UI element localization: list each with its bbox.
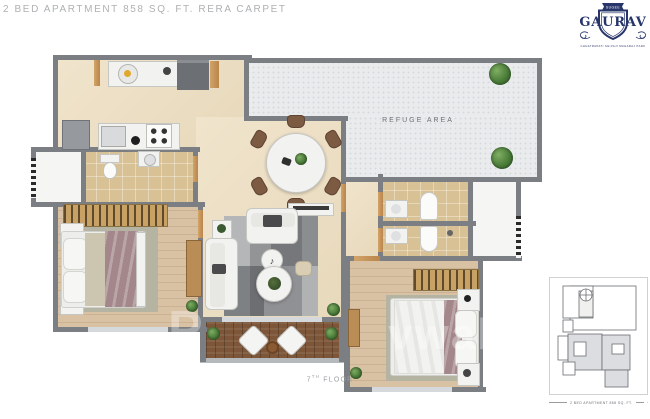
caption-line — [636, 402, 644, 403]
bedroom2-duvet — [394, 300, 446, 374]
window-dry-balcony — [31, 158, 36, 198]
refuge-area-lower — [343, 116, 540, 180]
master-pillow — [63, 238, 87, 270]
key-plan-caption-row: 2 BED APARTMENT 858 SQ. FT. — [549, 396, 648, 409]
bedroom2-wardrobe — [413, 269, 479, 291]
master-bedroom-door — [198, 210, 203, 238]
wall-balcony-right — [339, 320, 346, 362]
sofa-left-tray — [212, 264, 226, 274]
wall-refuge-bottom — [341, 177, 542, 182]
master-bedroom-plant — [186, 300, 198, 312]
gas-hob — [146, 124, 172, 148]
tv-icon — [293, 206, 329, 210]
window-utility — [516, 216, 521, 258]
dry-balcony-floor — [33, 150, 85, 205]
bedroom2-bench — [348, 309, 360, 347]
key-plan — [549, 277, 648, 395]
bathroom1-door — [193, 156, 198, 182]
toilet1-bowl — [103, 162, 117, 179]
refrigerator — [62, 120, 90, 150]
kitchen-door — [94, 60, 100, 86]
bathroom2-door — [378, 192, 383, 216]
washbasin2-bowl — [391, 204, 401, 214]
wall-dry-bath-divider — [81, 147, 86, 207]
toilet3 — [420, 226, 438, 252]
logo-brand-name: GAURAV — [579, 15, 646, 30]
bedside-lamp-icon — [464, 295, 471, 302]
floor-ordinal: TH — [312, 374, 320, 379]
brand-logo: SUGEE GAURAV CHHATRAPATI SHIVAJI MAHARAJ… — [576, 2, 650, 49]
utility-room-floor — [473, 180, 518, 260]
brand-logo-graphic: SUGEE GAURAV CHHATRAPATI SHIVAJI MAHARAJ… — [576, 2, 650, 49]
washbasin1-bowl — [144, 154, 156, 166]
key-plan-caption: 2 BED APARTMENT 858 SQ. FT. — [570, 401, 633, 405]
wall-living-right — [341, 116, 346, 322]
wall-master-left — [53, 202, 58, 332]
balcony-railing — [200, 358, 346, 363]
master-blanket-mauve — [105, 231, 138, 307]
bathroom3-door — [378, 228, 383, 252]
refuge-plant — [491, 147, 513, 169]
main-entrance-door — [210, 61, 219, 88]
pouf — [295, 261, 312, 276]
master-pillow — [63, 271, 87, 303]
floor-word: FLOOR — [323, 376, 353, 383]
shower-head-icon — [447, 230, 453, 236]
wall-bath-utility — [468, 177, 473, 261]
kitchen-tall-cabinet — [177, 60, 209, 90]
wall-balcony-left — [200, 320, 206, 362]
page-title: 2 BED APARTMENT 858 SQ. FT. RERA CARPET — [3, 4, 287, 15]
bedside-decor-icon — [463, 369, 471, 377]
floor-plan-page: 2 BED APARTMENT 858 SQ. FT. RERA CARPET … — [0, 0, 650, 419]
floor-label: 7TH FLOOR — [270, 374, 390, 383]
key-plan-drawing — [550, 278, 647, 394]
balcony-plant — [207, 327, 220, 340]
music-note-icon: ♪ — [270, 256, 275, 266]
fruit-bowl-icon — [124, 70, 131, 77]
compass-icon — [647, 396, 648, 409]
master-dresser — [186, 240, 202, 297]
window-master-bedroom — [88, 327, 168, 332]
passage-floor — [346, 177, 381, 262]
logo-ribbon-text: SUGEE — [606, 5, 621, 9]
wall-kitchen-left — [53, 55, 58, 152]
sofa-left — [205, 238, 238, 310]
kettle-icon — [131, 136, 140, 145]
master-footboard — [136, 232, 146, 307]
toilet2 — [420, 192, 438, 220]
living-room-plant — [327, 303, 340, 316]
coffee-table-plant — [268, 277, 281, 290]
wall-refuge-right — [537, 58, 542, 182]
logo-tagline: CHHATRAPATI SHIVAJI MAHARAJ PARK — [581, 44, 646, 48]
sofa-top-tray — [263, 215, 282, 227]
balcony-slider-door — [222, 317, 322, 322]
refuge-area-label: REFUGE AREA — [368, 117, 468, 124]
wall-foyer-refuge — [244, 58, 249, 121]
kitchen-faucet-icon — [163, 67, 171, 75]
bedroom2-pillow — [455, 310, 477, 338]
logo-flourish-right — [636, 32, 646, 39]
refuge-plant — [489, 63, 511, 85]
caption-line — [549, 402, 567, 403]
wall-top-kitchen — [53, 55, 252, 60]
balcony-plant — [325, 327, 338, 340]
kitchen-sink2 — [101, 126, 126, 147]
dining-table-plant — [295, 153, 307, 165]
washbasin3-bowl — [391, 231, 401, 241]
dining-chair — [287, 115, 305, 128]
bedroom2-door — [354, 256, 380, 261]
master-blanket-sage — [85, 233, 107, 306]
logo-flourish-left — [580, 32, 590, 39]
balcony-table — [266, 341, 279, 354]
passage-door — [341, 184, 346, 212]
side-table-plant — [217, 224, 226, 233]
window-bedroom2 — [372, 387, 452, 392]
